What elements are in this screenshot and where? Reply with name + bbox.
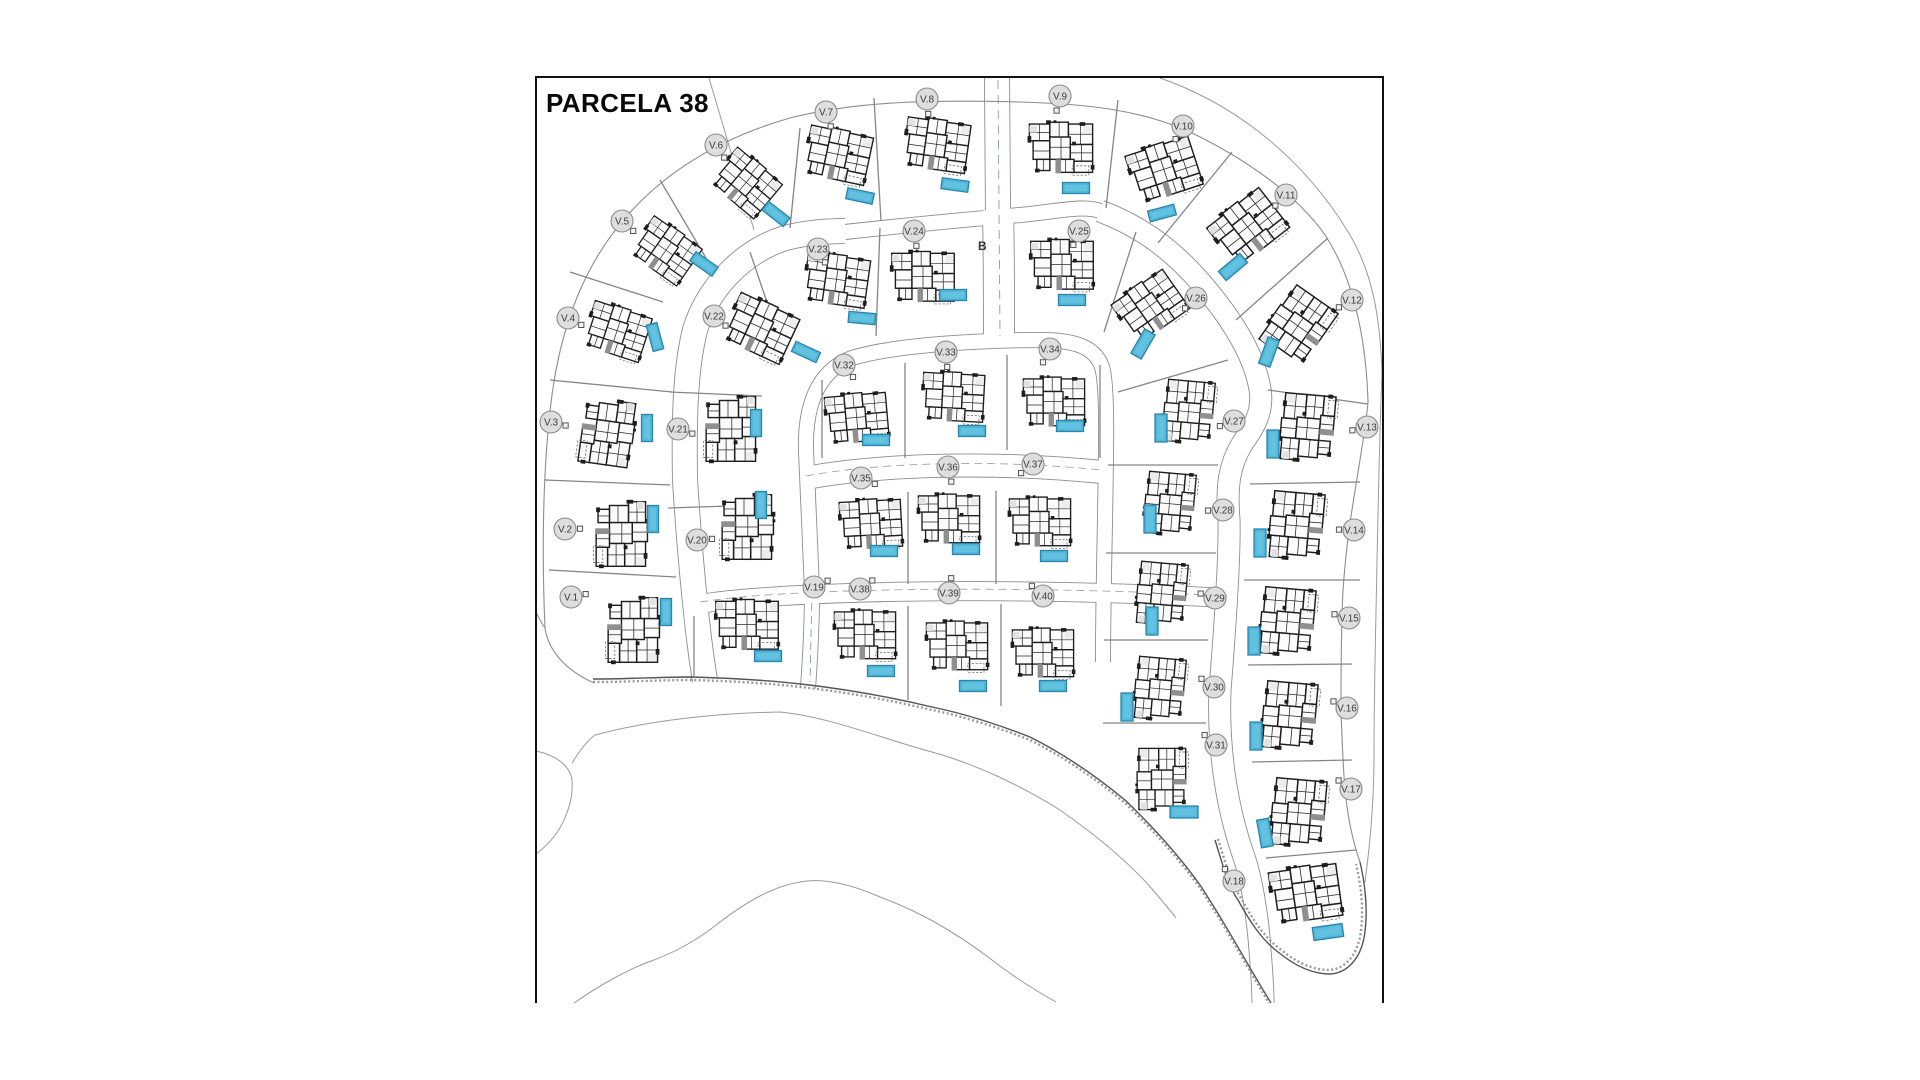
svg-text:V.2: V.2 <box>558 525 573 536</box>
svg-text:V.34: V.34 <box>1040 345 1060 356</box>
svg-text:V.9: V.9 <box>1053 92 1068 103</box>
svg-text:V.23: V.23 <box>808 245 828 256</box>
svg-text:V.28: V.28 <box>1213 506 1233 517</box>
svg-text:V.20: V.20 <box>687 536 707 547</box>
svg-text:V.32: V.32 <box>834 361 854 372</box>
svg-text:V.6: V.6 <box>709 141 724 152</box>
svg-text:V.7: V.7 <box>819 108 834 119</box>
svg-text:V.24: V.24 <box>904 227 924 238</box>
svg-text:V.14: V.14 <box>1344 526 1364 537</box>
svg-text:V.36: V.36 <box>938 463 958 474</box>
svg-text:V.39: V.39 <box>939 589 959 600</box>
svg-text:V.4: V.4 <box>561 314 576 325</box>
svg-text:V.35: V.35 <box>851 474 871 485</box>
svg-text:V.5: V.5 <box>615 217 630 228</box>
svg-text:V.37: V.37 <box>1023 460 1043 471</box>
svg-text:V.38: V.38 <box>850 585 870 596</box>
svg-text:V.30: V.30 <box>1204 683 1224 694</box>
svg-text:V.26: V.26 <box>1186 294 1206 305</box>
svg-text:V.15: V.15 <box>1339 614 1359 625</box>
svg-text:V.31: V.31 <box>1206 741 1226 752</box>
svg-text:V.18: V.18 <box>1224 877 1244 888</box>
svg-text:V.10: V.10 <box>1173 122 1193 133</box>
svg-text:V.8: V.8 <box>920 95 935 106</box>
svg-text:V.17: V.17 <box>1341 785 1361 796</box>
svg-text:V.21: V.21 <box>668 425 688 436</box>
svg-text:V.40: V.40 <box>1033 592 1053 603</box>
svg-text:V.25: V.25 <box>1069 227 1089 238</box>
svg-text:PARCELA 38: PARCELA 38 <box>546 88 709 118</box>
svg-text:V.22: V.22 <box>704 312 724 323</box>
svg-text:V.3: V.3 <box>544 418 559 429</box>
svg-text:V.27: V.27 <box>1224 417 1244 428</box>
svg-text:V.1: V.1 <box>564 593 579 604</box>
svg-text:V.33: V.33 <box>936 348 956 359</box>
svg-text:V.16: V.16 <box>1337 704 1357 715</box>
svg-text:B: B <box>978 239 987 253</box>
svg-text:V.19: V.19 <box>804 583 824 594</box>
svg-text:V.12: V.12 <box>1342 296 1362 307</box>
svg-text:V.11: V.11 <box>1277 191 1296 202</box>
svg-text:V.29: V.29 <box>1205 594 1225 605</box>
svg-text:V.13: V.13 <box>1357 423 1377 434</box>
